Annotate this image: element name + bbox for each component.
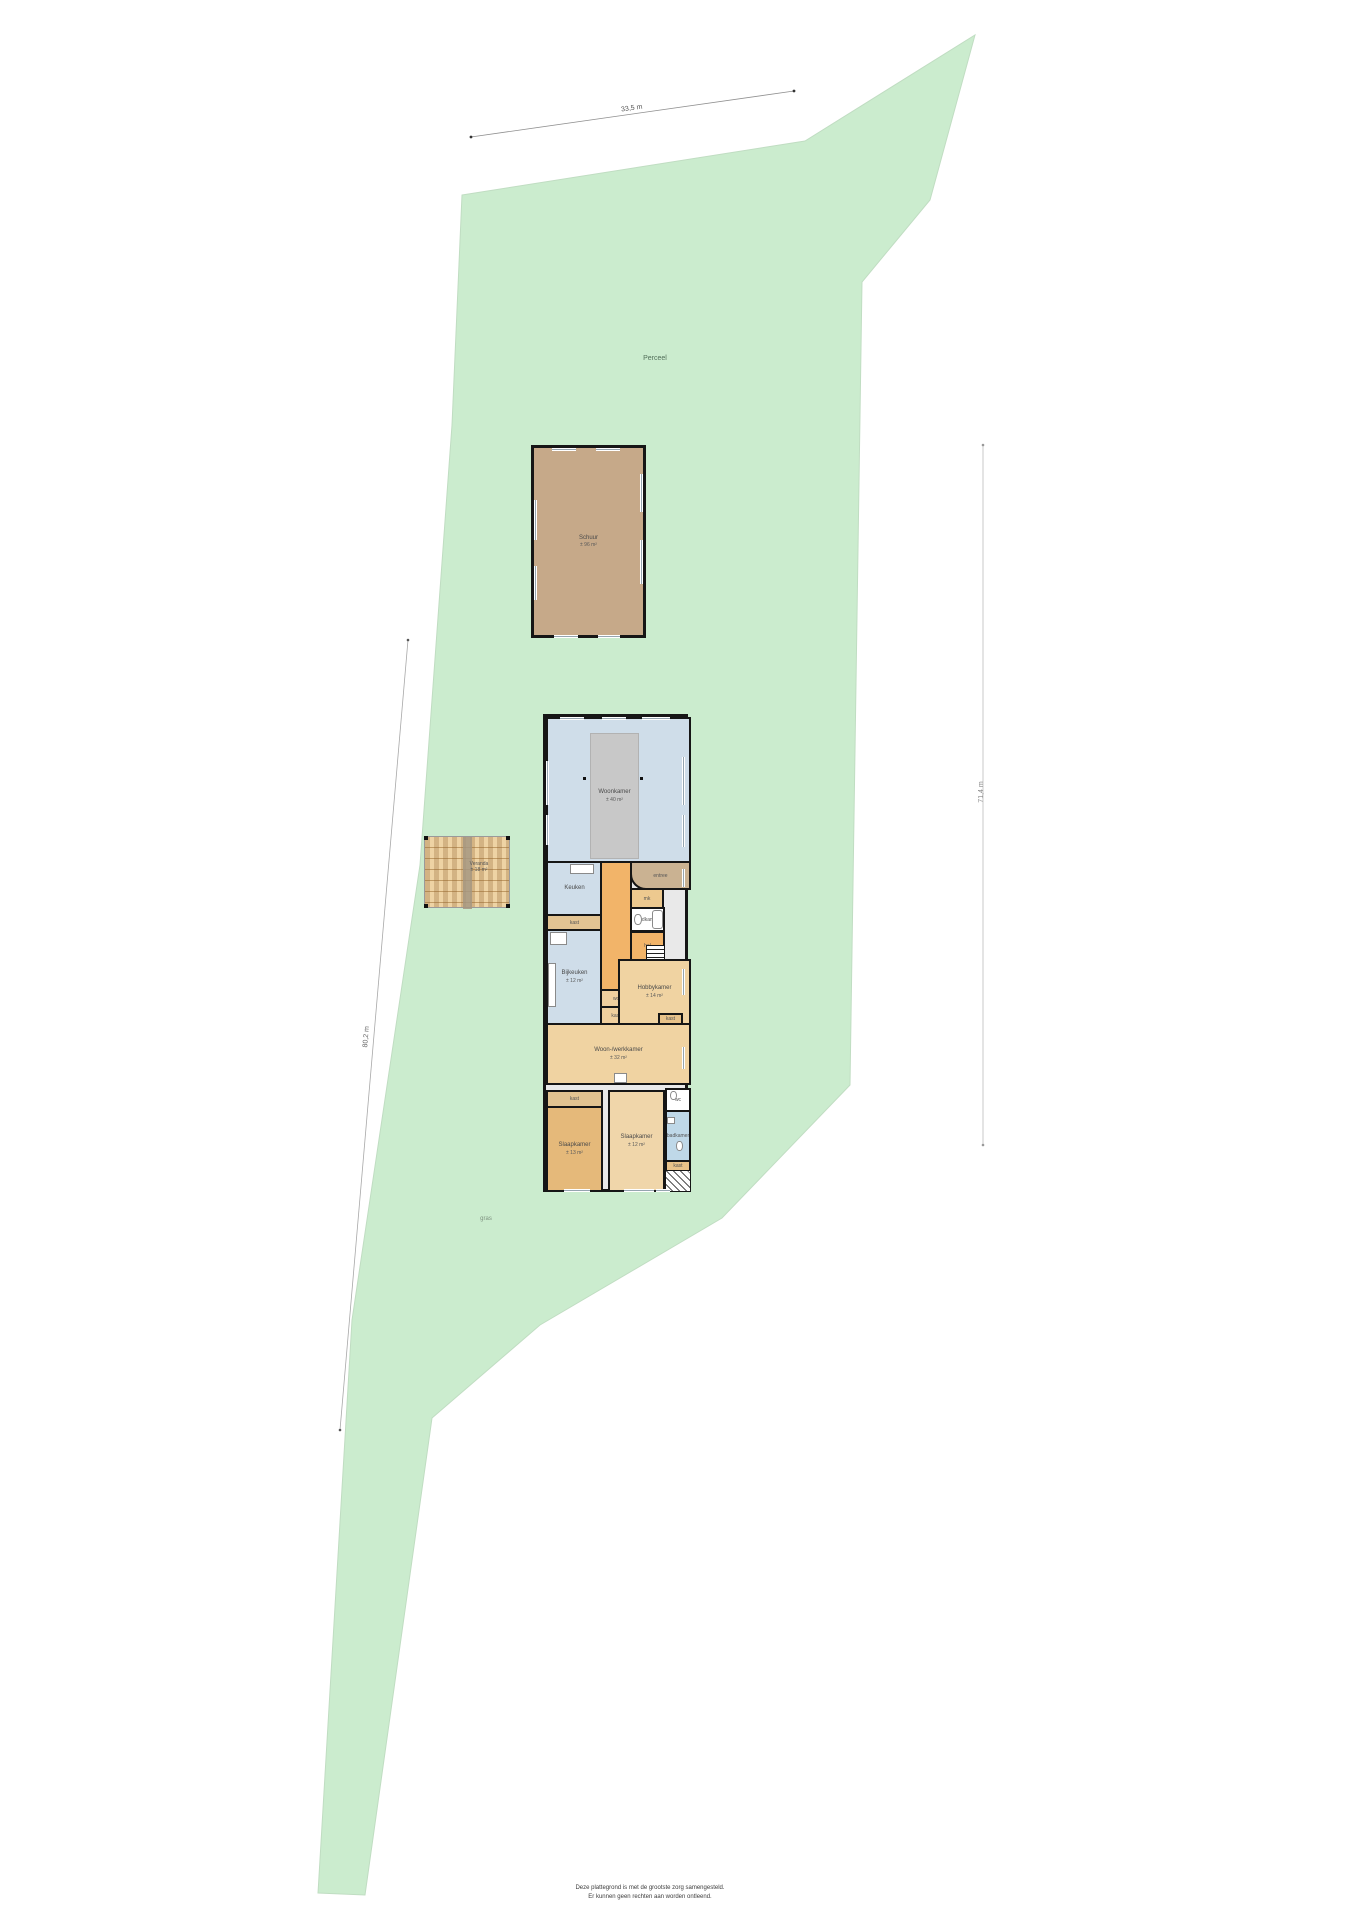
room-mk-label: mk [644, 896, 651, 902]
window [682, 869, 685, 887]
room-wc-2: wc [665, 1088, 691, 1112]
deck-post [506, 904, 510, 908]
column-dot [583, 777, 586, 780]
room-kast-label: kast [673, 1163, 682, 1169]
appliance [550, 932, 567, 945]
window [560, 717, 584, 720]
barn-building: Schuur ± 96 m² [531, 445, 646, 638]
disclaimer-line-2: Er kunnen geen rechten aan worden ontlee… [420, 1893, 880, 1902]
window [602, 717, 626, 720]
stove-icon [614, 1073, 627, 1083]
house-building: Woonkamer ± 40 m² Keuken kast Bijkeuken … [543, 714, 688, 1192]
room-bijkeuken-name: Bijkeuken [561, 970, 587, 978]
sink-icon [667, 1117, 675, 1124]
window [552, 448, 576, 451]
room-hobbykamer-name: Hobbykamer [637, 985, 671, 993]
room-kast-label: kast [570, 1096, 579, 1102]
window [534, 500, 537, 540]
room-kast-label: kast [570, 920, 579, 926]
window [640, 540, 643, 584]
dimension-tick [407, 639, 410, 642]
deck-post [424, 836, 428, 840]
window [656, 1189, 670, 1192]
room-slaapkamer-1: Slaapkamer ± 13 m² [546, 1106, 603, 1192]
dimension-tick [982, 444, 985, 447]
room-kast-label: kast [666, 1016, 675, 1022]
appliance [548, 963, 556, 1007]
deck-beam [463, 837, 472, 909]
room-slaapkamer2-area: ± 12 m² [628, 1142, 645, 1148]
window [554, 635, 578, 638]
room-keuken-name: Keuken [564, 885, 584, 893]
window [682, 757, 685, 805]
barn-area: ± 96 m² [580, 542, 597, 548]
dimension-label-left: 80,2 m [362, 1026, 371, 1048]
window [682, 1047, 685, 1069]
room-woonwerkkamer-area: ± 32 m² [610, 1055, 627, 1061]
deck-post [424, 904, 428, 908]
grass-label: gras [480, 1216, 492, 1222]
disclaimer-line-1: Deze plattegrond is met de grootste zorg… [420, 1884, 880, 1893]
dimension-tick [470, 136, 473, 139]
dimension-tick [339, 1429, 342, 1432]
window [624, 1189, 654, 1192]
room-woonwerkkamer-name: Woon-/werkkamer [594, 1047, 643, 1055]
veranda-label: Veranda ± 18 m² [453, 861, 505, 873]
room-hobbykamer-area: ± 14 m² [646, 993, 663, 999]
window [642, 717, 670, 720]
veranda-area: ± 18 m² [453, 867, 505, 873]
window [564, 1189, 590, 1192]
window [596, 448, 620, 451]
window [534, 566, 537, 600]
room-slaapkamer2-name: Slaapkamer [620, 1134, 652, 1142]
dimension-tick [982, 1144, 985, 1147]
room-bijkeuken-area: ± 12 m² [566, 978, 583, 984]
disclaimer: Deze plattegrond is met de grootste zorg… [420, 1884, 880, 1902]
bathtub-icon [652, 910, 663, 929]
room-slaapkamer-2: Slaapkamer ± 12 m² [608, 1090, 665, 1192]
window [640, 474, 643, 512]
woonkamer-gray-zone: Woonkamer ± 40 m² [590, 733, 639, 859]
room-woonkamer-area: ± 40 m² [606, 797, 623, 803]
room-badkamer-label: badkamer [667, 1133, 689, 1139]
window [598, 635, 620, 638]
deck-post [506, 836, 510, 840]
toilet-icon [670, 1091, 677, 1100]
room-entree-label: entree [653, 873, 667, 879]
window [682, 969, 685, 995]
kitchen-counter [570, 864, 594, 874]
column-dot [640, 777, 643, 780]
barn-name: Schuur [579, 535, 598, 543]
room-slaapkamer1-area: ± 13 m² [566, 1150, 583, 1156]
window [546, 815, 549, 845]
parcel-label: Perceel [643, 355, 667, 362]
veranda-deck: Veranda ± 18 m² [424, 836, 510, 908]
window [546, 761, 549, 805]
dimension-label-top: 33,5 m [621, 104, 643, 114]
toilet-icon [634, 914, 642, 925]
dimension-tick [793, 90, 796, 93]
room-slaapkamer1-name: Slaapkamer [558, 1142, 590, 1150]
dimension-line-top [471, 91, 794, 137]
dimension-label-right: 71,4 m [978, 781, 985, 803]
window [682, 815, 685, 847]
room-mk: mk [630, 888, 664, 909]
site-plan-canvas: 33,5 m 80,2 m 71,4 m Perceel gras Schuur… [0, 0, 1358, 1920]
room-woonkamer-name: Woonkamer [598, 789, 630, 797]
toilet-icon [676, 1141, 683, 1151]
